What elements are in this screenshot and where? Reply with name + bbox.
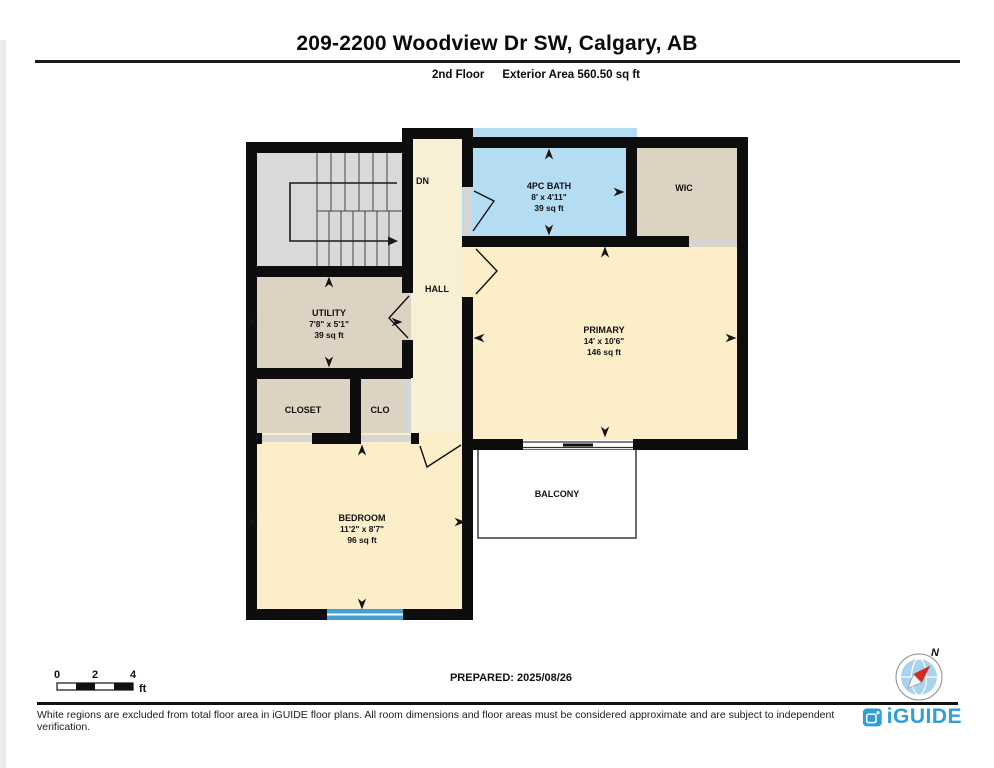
scale-tick-4: 4	[130, 669, 137, 681]
utility-label: UTILITY	[312, 308, 346, 318]
floor-plan-page: 209-2200 Woodview Dr SW, Calgary, AB 2nd…	[0, 0, 994, 768]
floor-plan-drawing: DN HALL 4PC BATH 8' x 4'11" 39 sq ft WIC…	[0, 0, 994, 768]
primary-label-group: PRIMARY 14' x 10'6" 146 sq ft	[583, 325, 624, 357]
scale-bar: 0 2 4 ft	[54, 669, 147, 695]
bath-dims: 8' x 4'11"	[531, 192, 566, 202]
footer-divider	[37, 702, 958, 705]
balcony-sliding-door	[523, 440, 633, 449]
utility-dims: 7'8" x 5'1"	[309, 319, 349, 329]
bedroom-area: 96 sq ft	[347, 535, 377, 545]
bath-area: 39 sq ft	[534, 203, 564, 213]
bath-label: 4PC BATH	[527, 181, 571, 191]
utility-area: 39 sq ft	[314, 330, 344, 340]
primary-dims: 14' x 10'6"	[584, 336, 625, 346]
utility-label-group: UTILITY 7'8" x 5'1" 39 sq ft	[309, 308, 349, 340]
stairs-dn-label: DN	[416, 176, 429, 186]
compass-icon: N	[896, 647, 942, 700]
footer-disclaimer: White regions are excluded from total fl…	[37, 709, 867, 733]
iguide-brand-text: iGUIDE	[887, 705, 962, 729]
balcony-label: BALCONY	[535, 489, 580, 499]
prepared-date: PREPARED: 2025/08/26	[450, 672, 572, 684]
bedroom-window	[327, 609, 403, 620]
clo-label: CLO	[371, 405, 390, 415]
closet-label: CLOSET	[285, 405, 322, 415]
primary-label: PRIMARY	[583, 325, 624, 335]
scale-unit: ft	[139, 683, 147, 695]
wic-label: WIC	[675, 183, 693, 193]
primary-area: 146 sq ft	[587, 347, 621, 357]
bedroom-dims: 11'2" x 8'7"	[340, 524, 384, 534]
iguide-camera-icon	[862, 706, 883, 728]
scale-tick-0: 0	[54, 669, 60, 681]
hall-label: HALL	[425, 284, 449, 294]
north-label: N	[931, 647, 940, 659]
bedroom-label: BEDROOM	[339, 513, 386, 523]
iguide-logo: iGUIDE	[862, 704, 962, 730]
scale-tick-2: 2	[92, 669, 98, 681]
